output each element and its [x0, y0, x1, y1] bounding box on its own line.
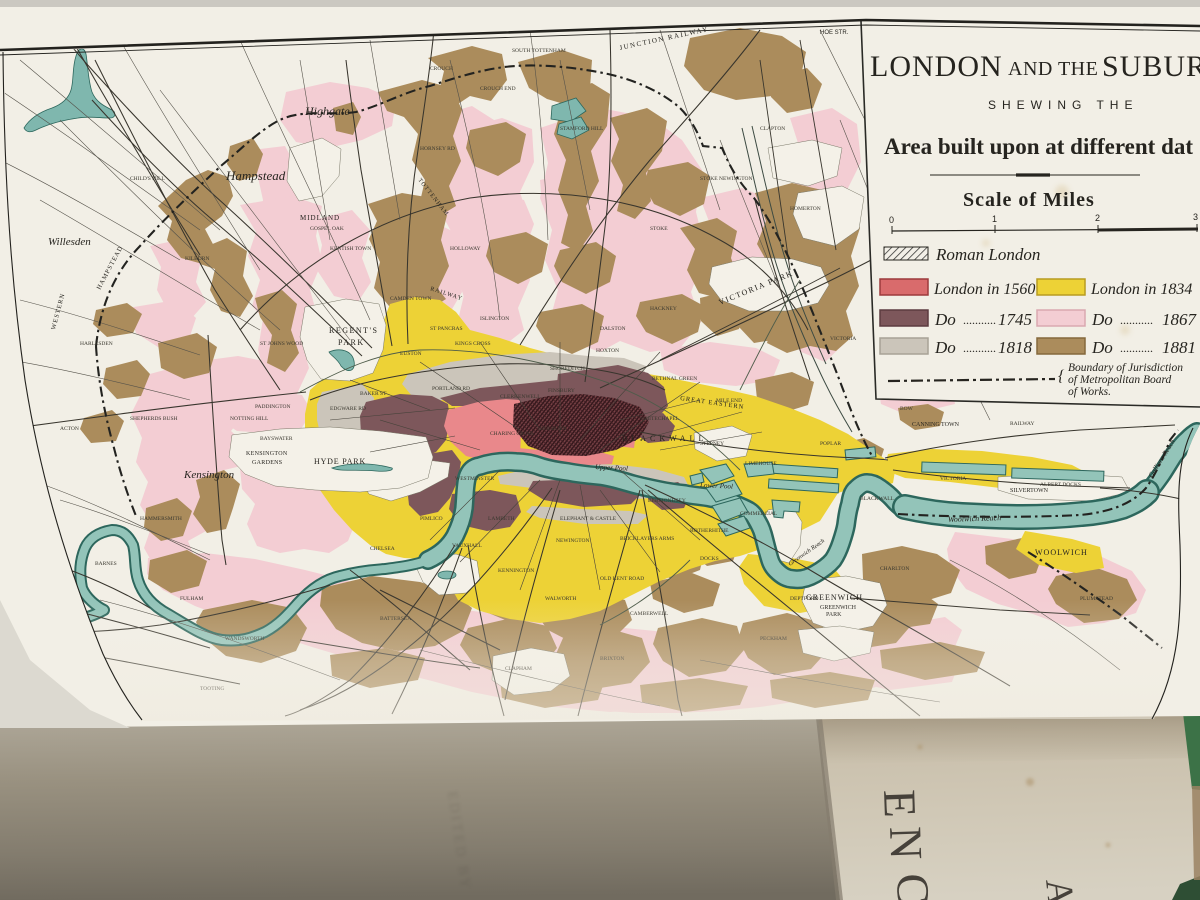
- svg-text:{: {: [1058, 368, 1065, 385]
- svg-text:LONDON: LONDON: [870, 50, 1003, 83]
- svg-text:...........: ...........: [963, 313, 996, 327]
- svg-text:Woolwich Reach: Woolwich Reach: [948, 513, 1002, 524]
- svg-text:COMMERCIAL: COMMERCIAL: [740, 511, 778, 517]
- svg-text:SHEWING THE: SHEWING THE: [988, 98, 1138, 112]
- svg-text:PIMLICO: PIMLICO: [420, 516, 443, 522]
- svg-text:HOXTON: HOXTON: [596, 348, 619, 354]
- svg-text:NOTTING HILL: NOTTING HILL: [230, 416, 269, 422]
- svg-text:CHARING CROSS: CHARING CROSS: [490, 431, 534, 437]
- svg-text:PARK: PARK: [338, 338, 365, 347]
- svg-text:CHILD'S HILL: CHILD'S HILL: [130, 176, 165, 182]
- svg-text:HAMMERSMITH: HAMMERSMITH: [140, 516, 182, 522]
- svg-text:BLACKWALL: BLACKWALL: [622, 434, 707, 443]
- svg-text:Kensington: Kensington: [183, 469, 235, 481]
- svg-text:Do: Do: [1091, 338, 1113, 357]
- svg-text:SHEPHERDS BUSH: SHEPHERDS BUSH: [130, 416, 178, 422]
- svg-text:ELEPHANT & CASTLE: ELEPHANT & CASTLE: [560, 516, 617, 522]
- svg-text:REGENT'S: REGENT'S: [329, 326, 378, 335]
- svg-text:BETHNAL GREEN: BETHNAL GREEN: [652, 376, 697, 382]
- svg-text:GARDENS: GARDENS: [252, 460, 282, 466]
- svg-text:SOUTH TOTTENHAM: SOUTH TOTTENHAM: [512, 48, 566, 54]
- svg-text:Boundary of Jurisdiction: Boundary of Jurisdiction: [1068, 362, 1183, 374]
- svg-text:FINSBURY: FINSBURY: [548, 388, 575, 394]
- svg-text:CLERKENWELL: CLERKENWELL: [500, 394, 541, 400]
- svg-text:PADDINGTON: PADDINGTON: [255, 404, 290, 410]
- svg-text:ST PANCRAS: ST PANCRAS: [430, 326, 463, 332]
- svg-text:1: 1: [992, 214, 997, 224]
- svg-text:KENTISH TOWN: KENTISH TOWN: [330, 246, 371, 252]
- svg-text:KINGS CROSS: KINGS CROSS: [455, 341, 491, 347]
- svg-text:E: E: [874, 789, 926, 819]
- svg-text:POPLAR: POPLAR: [820, 441, 841, 447]
- svg-text:London in 1560: London in 1560: [933, 281, 1035, 298]
- svg-text:CLAPTON: CLAPTON: [760, 126, 785, 132]
- svg-text:VAUXHALL: VAUXHALL: [452, 543, 482, 549]
- svg-text:Area built upon at different d: Area built upon at different dat: [884, 134, 1193, 159]
- svg-text:GOSPEL OAK: GOSPEL OAK: [310, 226, 344, 232]
- svg-text:HARLESDEN: HARLESDEN: [80, 341, 113, 347]
- svg-text:N: N: [880, 826, 932, 861]
- svg-text:HOLLOWAY: HOLLOWAY: [450, 246, 481, 252]
- svg-text:1867: 1867: [1162, 310, 1198, 329]
- svg-text:2: 2: [1095, 213, 1100, 223]
- svg-text:Highgate: Highgate: [304, 104, 350, 118]
- svg-text:ST JOHNS WOOD: ST JOHNS WOOD: [260, 341, 303, 347]
- svg-text:EDGWARE RD: EDGWARE RD: [330, 406, 366, 412]
- svg-text:BOW: BOW: [900, 406, 914, 412]
- svg-text:CROUCH END: CROUCH END: [480, 86, 516, 92]
- svg-text:0: 0: [889, 215, 894, 225]
- svg-text:STAMFORD HILL: STAMFORD HILL: [560, 126, 604, 132]
- svg-text:BARNES: BARNES: [95, 561, 117, 567]
- svg-text:...........: ...........: [1120, 341, 1153, 355]
- svg-text:SHOREDITCH: SHOREDITCH: [550, 366, 585, 372]
- svg-text:Do: Do: [934, 310, 956, 329]
- svg-text:London in 1834: London in 1834: [1090, 281, 1192, 298]
- svg-text:VICTORIA: VICTORIA: [830, 336, 856, 342]
- svg-text:C: C: [887, 873, 939, 900]
- svg-text:HACKNEY: HACKNEY: [650, 306, 677, 312]
- svg-text:Hampstead: Hampstead: [225, 168, 286, 183]
- svg-text:MIDLAND: MIDLAND: [300, 214, 340, 222]
- svg-text:WHITECHAPEL: WHITECHAPEL: [640, 416, 680, 422]
- svg-text:STOKE NEWINGTON: STOKE NEWINGTON: [700, 176, 753, 182]
- svg-text:Scale of Miles: Scale of Miles: [963, 189, 1095, 211]
- svg-text:HOMERTON: HOMERTON: [790, 206, 821, 212]
- svg-text:BLACKWALL: BLACKWALL: [860, 496, 895, 502]
- svg-text:ALBERT DOCKS: ALBERT DOCKS: [1040, 482, 1081, 488]
- svg-text:...........: ...........: [963, 341, 996, 355]
- svg-text:BAYSWATER: BAYSWATER: [260, 436, 293, 442]
- svg-text:CHELSEA: CHELSEA: [370, 546, 395, 552]
- svg-text:1745: 1745: [998, 310, 1032, 329]
- svg-text:HYDE PARK: HYDE PARK: [314, 457, 366, 466]
- svg-text:CROUCH: CROUCH: [430, 66, 453, 72]
- svg-text:BAKER ST: BAKER ST: [360, 391, 387, 397]
- svg-text:LIMEHOUSE: LIMEHOUSE: [745, 461, 777, 467]
- svg-text:WOOLWICH: WOOLWICH: [1035, 548, 1088, 557]
- svg-text:STEPNEY: STEPNEY: [700, 441, 724, 447]
- svg-text:SUBUR: SUBUR: [1102, 50, 1200, 83]
- svg-text:of Metropolitan Board: of Metropolitan Board: [1068, 374, 1172, 386]
- svg-text:DALSTON: DALSTON: [600, 326, 626, 332]
- svg-text:CAMDEN TOWN: CAMDEN TOWN: [390, 296, 432, 302]
- svg-text:AND THE: AND THE: [1008, 58, 1098, 80]
- svg-text:ROTHERHITHE: ROTHERHITHE: [690, 528, 729, 534]
- svg-text:Willesden: Willesden: [48, 236, 91, 248]
- svg-text:CANNING TOWN: CANNING TOWN: [912, 422, 960, 428]
- svg-text:1818: 1818: [998, 338, 1033, 357]
- svg-text:PORTLAND RD: PORTLAND RD: [432, 386, 470, 392]
- svg-text:WESTMINSTER: WESTMINSTER: [455, 476, 494, 482]
- svg-text:...........: ...........: [1120, 313, 1153, 327]
- svg-text:KILBURN: KILBURN: [185, 256, 209, 262]
- svg-text:VICTORIA: VICTORIA: [940, 476, 966, 482]
- svg-text:KENNINGTON: KENNINGTON: [498, 568, 534, 574]
- svg-text:HORNSEY RD: HORNSEY RD: [420, 146, 455, 152]
- svg-text:MILE END: MILE END: [716, 398, 742, 404]
- svg-text:BRICKLAYERS ARMS: BRICKLAYERS ARMS: [620, 536, 674, 542]
- svg-text:of Works.: of Works.: [1068, 386, 1111, 398]
- svg-text:ACTON: ACTON: [60, 426, 79, 432]
- svg-text:HOLBORN: HOLBORN: [540, 426, 567, 432]
- svg-text:BERMONDSEY: BERMONDSEY: [648, 498, 686, 504]
- svg-text:OLD KENT ROAD: OLD KENT ROAD: [600, 576, 644, 582]
- svg-text:A: A: [1037, 877, 1082, 900]
- svg-text:STOKE: STOKE: [650, 226, 668, 232]
- svg-text:1881: 1881: [1162, 338, 1196, 357]
- svg-text:HOE STR.: HOE STR.: [820, 30, 849, 36]
- svg-text:3: 3: [1193, 212, 1198, 222]
- svg-text:Roman London: Roman London: [935, 245, 1040, 264]
- svg-text:Do: Do: [1091, 310, 1113, 329]
- svg-text:KENSINGTON: KENSINGTON: [246, 451, 288, 457]
- svg-text:LAMBETH: LAMBETH: [488, 516, 515, 522]
- svg-text:RAILWAY: RAILWAY: [1010, 421, 1034, 427]
- svg-text:ISLINGTON: ISLINGTON: [480, 316, 509, 322]
- svg-text:SILVERTOWN: SILVERTOWN: [1010, 488, 1049, 494]
- svg-text:EUSTON: EUSTON: [400, 351, 422, 357]
- svg-text:DOCKS: DOCKS: [700, 556, 719, 562]
- svg-text:CHARLTON: CHARLTON: [880, 566, 909, 572]
- svg-text:NEWINGTON: NEWINGTON: [556, 538, 590, 544]
- svg-text:Do: Do: [934, 338, 956, 357]
